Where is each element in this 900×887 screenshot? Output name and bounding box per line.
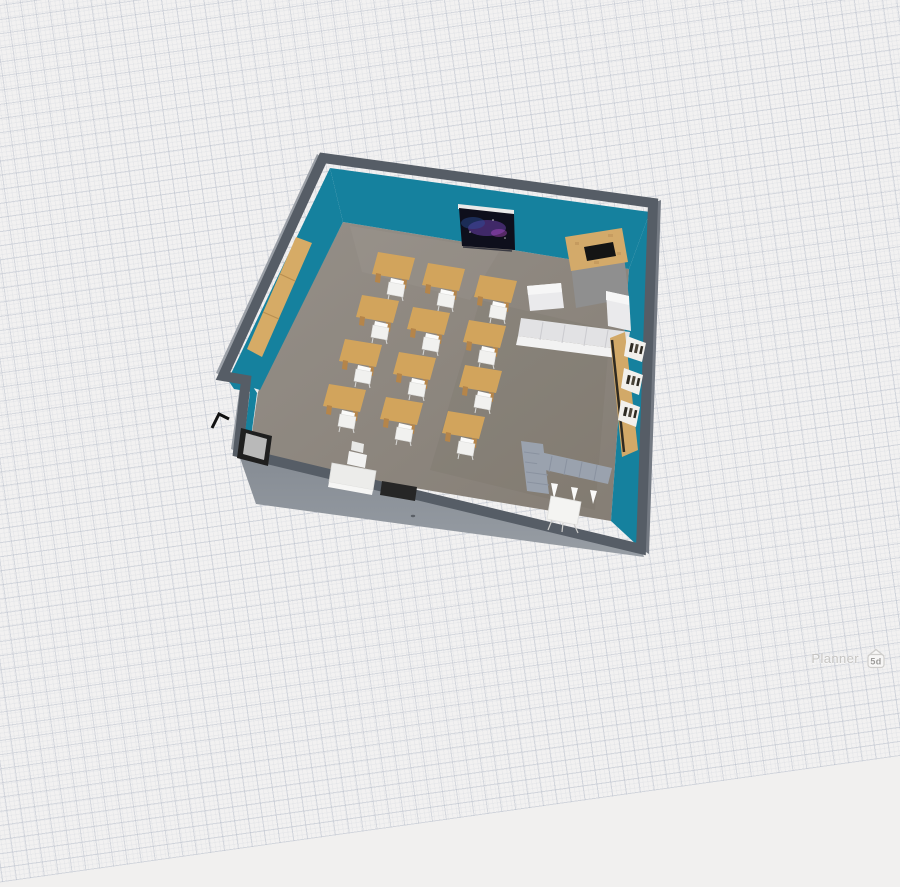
door-handle[interactable] — [212, 414, 229, 428]
tv-screen[interactable] — [458, 204, 515, 251]
wall-dot — [411, 515, 415, 517]
planner5d-house-icon: 5d — [864, 648, 888, 669]
watermark-badge-text: 5d — [870, 657, 881, 667]
watermark-brand-text: Planner — [811, 651, 859, 666]
floorplan-3d-viewport[interactable] — [0, 0, 900, 675]
planner5d-watermark: Planner 5d — [811, 648, 888, 669]
